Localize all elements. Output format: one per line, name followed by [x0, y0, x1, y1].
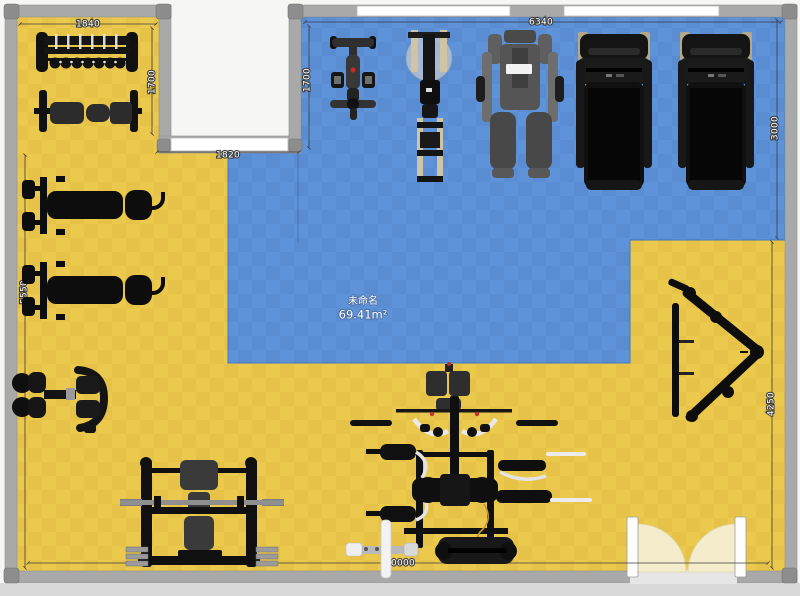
dim-zone-top-width: 6340 [529, 18, 553, 28]
door-leaf-left[interactable] [627, 517, 638, 577]
wall-top-alcove [5, 5, 171, 17]
corner-post [782, 4, 797, 19]
window-notch[interactable] [171, 138, 288, 151]
room-area: 69.41m² [339, 308, 388, 322]
corner-post [289, 139, 302, 152]
dim-alcove-height: 1700 [148, 70, 158, 94]
treadmill-1[interactable] [576, 32, 652, 190]
dim-right-upper: 3000 [771, 116, 781, 140]
window-top-1[interactable] [357, 6, 510, 16]
corner-post [288, 4, 303, 19]
wall-zone-left [289, 5, 301, 153]
dumbbell-rack[interactable] [36, 32, 138, 72]
door-leaf-right[interactable] [735, 517, 746, 577]
room-name: 未命名 [348, 294, 378, 307]
wall-shadow-strip [0, 583, 800, 596]
dim-alcove-width: 1840 [76, 20, 100, 30]
dim-right-lower: 4250 [767, 392, 777, 416]
corner-post [4, 4, 19, 19]
corner-post [156, 4, 171, 19]
treadmill-2[interactable] [678, 32, 754, 190]
window-top-2[interactable] [564, 6, 719, 16]
corner-post [4, 568, 19, 583]
dim-notch-width: 1820 [216, 151, 240, 161]
white-pillar [381, 520, 391, 578]
wall-right [785, 5, 797, 583]
floorplan-canvas[interactable]: 1840 1700 6340 1700 1820 3000 4250 5550 … [0, 0, 800, 596]
wall-alcove-right [159, 5, 171, 153]
corner-post [782, 568, 797, 583]
corner-post [157, 139, 170, 152]
dim-zone-left-height: 1700 [303, 68, 313, 92]
wall-left [5, 5, 17, 583]
floorplan-svg: 1840 1700 6340 1700 1820 3000 4250 5550 … [0, 0, 800, 596]
